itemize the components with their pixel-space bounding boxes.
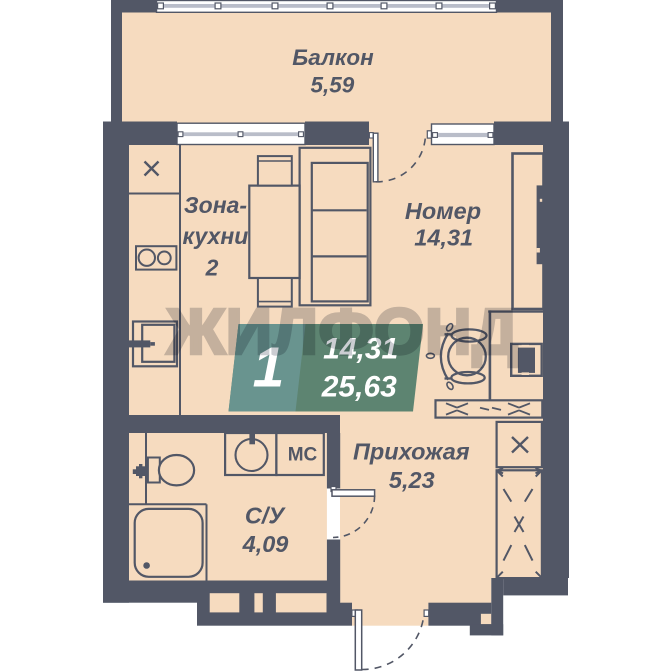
svg-text:Прихожая: Прихожая [353,439,470,465]
svg-text:С/У: С/У [245,503,287,529]
svg-text:ЖИЛФОНД: ЖИЛФОНД [166,296,519,368]
svg-text:МС: МС [288,445,318,466]
svg-text:кухни: кухни [183,223,249,249]
svg-text:2: 2 [205,255,219,281]
svg-text:Зона-: Зона- [184,192,247,218]
svg-text:Балкон: Балкон [292,45,374,70]
svg-text:14,31: 14,31 [414,225,473,251]
svg-text:5,59: 5,59 [311,73,355,98]
svg-text:5,23: 5,23 [389,467,435,493]
svg-text:4,09: 4,09 [242,531,289,557]
svg-text:25,63: 25,63 [321,371,397,404]
svg-text:Номер: Номер [405,198,481,224]
